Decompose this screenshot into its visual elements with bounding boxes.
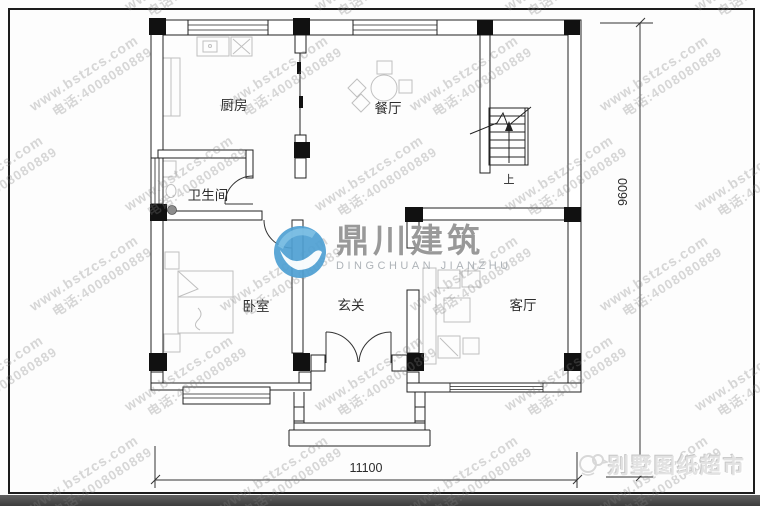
corner-brand: 别墅图纸超市	[576, 450, 746, 480]
stairs-up-label: 上	[504, 173, 515, 186]
room-label-kitchen: 厨房	[221, 98, 248, 113]
room-label-dining: 餐厅	[375, 101, 402, 116]
dimension-height: 9600	[616, 178, 630, 206]
stairs: 上	[470, 107, 531, 186]
room-label-bathroom: 卫生间	[188, 188, 229, 203]
brand-name-en: DINGCHUAN JIANZHU	[336, 260, 512, 272]
room-label-living: 客厅	[510, 297, 537, 313]
walls-layer	[151, 20, 581, 392]
brand-watermark: 鼎川建筑 DINGCHUAN JIANZHU	[272, 224, 512, 280]
floorplan-image: 上 11100 9	[0, 0, 760, 506]
corner-brand-text: 别墅图纸超市	[608, 450, 746, 480]
room-label-bedroom: 卧室	[243, 298, 270, 314]
porch-steps	[289, 392, 430, 446]
dingchuan-logo-icon	[272, 224, 328, 280]
brand-name-cn: 鼎川建筑	[336, 224, 512, 257]
room-label-foyer: 玄关	[338, 297, 365, 313]
bird-icon	[576, 451, 608, 479]
dimension-width: 11100	[350, 461, 383, 475]
